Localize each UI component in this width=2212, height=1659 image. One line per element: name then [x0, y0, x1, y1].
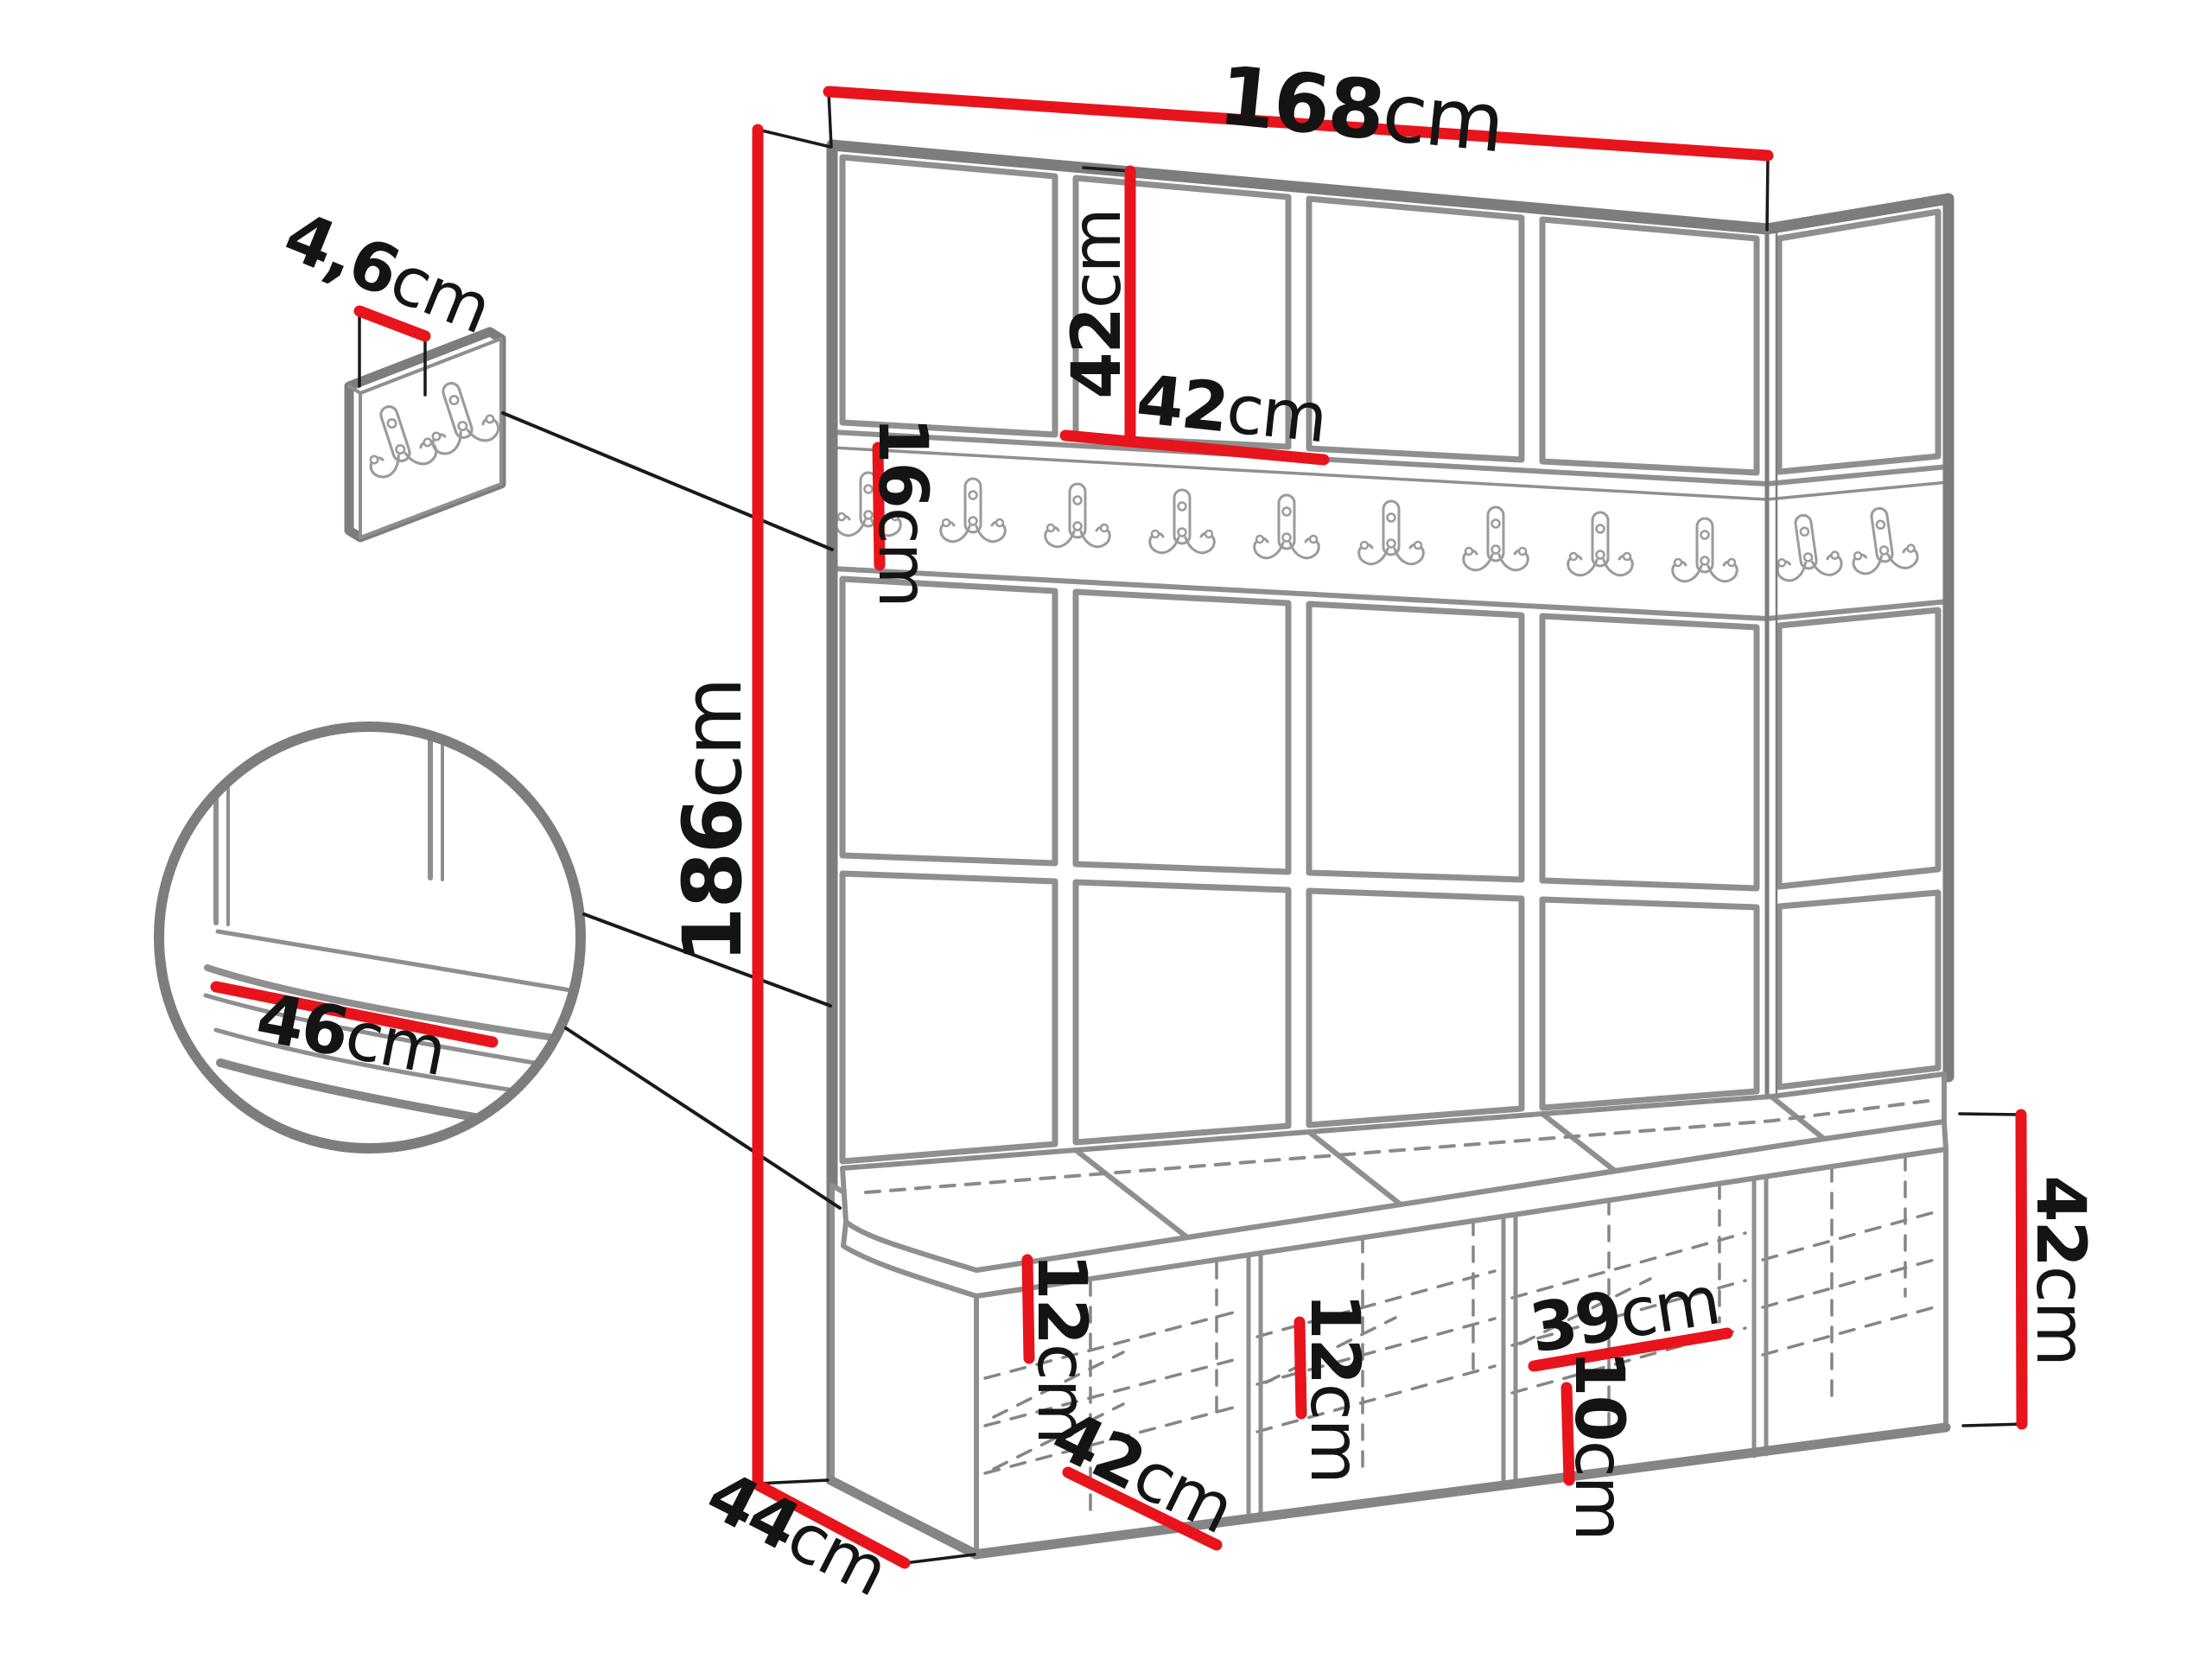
dim-shelf-gap-2-label: 12cm [1300, 1293, 1368, 1482]
double-hook-icon [1847, 504, 1919, 575]
dim-total-height-label: 186cm [673, 678, 754, 963]
double-hook-icon [941, 479, 1006, 542]
callout-line [503, 413, 832, 550]
double-hook-icon [1255, 495, 1319, 558]
panel-grid-middle-rows [842, 579, 1938, 1161]
double-hook-icon [1770, 511, 1843, 582]
double-hook-icon [1359, 501, 1424, 564]
dim-bench-height-label: 42cm [2026, 1175, 2094, 1364]
dim-bottom-gap-label: 10cm [1565, 1350, 1632, 1539]
dim-rail-height-label: 16cm [868, 416, 936, 606]
seat-corner-detail-circle [159, 720, 581, 1148]
panel-grid-top-row [842, 157, 1938, 473]
double-hook-icon [1673, 518, 1738, 582]
double-hook-icon [1150, 490, 1215, 553]
dim-panel-height-label: 42cm [1064, 209, 1131, 398]
double-hook-icon [1046, 484, 1110, 547]
double-hook-icon [1464, 507, 1529, 570]
coat-hooks-row [836, 473, 1919, 582]
callout-line [566, 1028, 840, 1208]
dim-panel-width-label: 42cm [1134, 366, 1329, 454]
double-hook-icon [1568, 512, 1633, 575]
diagram-canvas: 168cm 42cm 42cm 16cm 186cm 4,6cm 46cm 12… [0, 0, 2212, 1659]
